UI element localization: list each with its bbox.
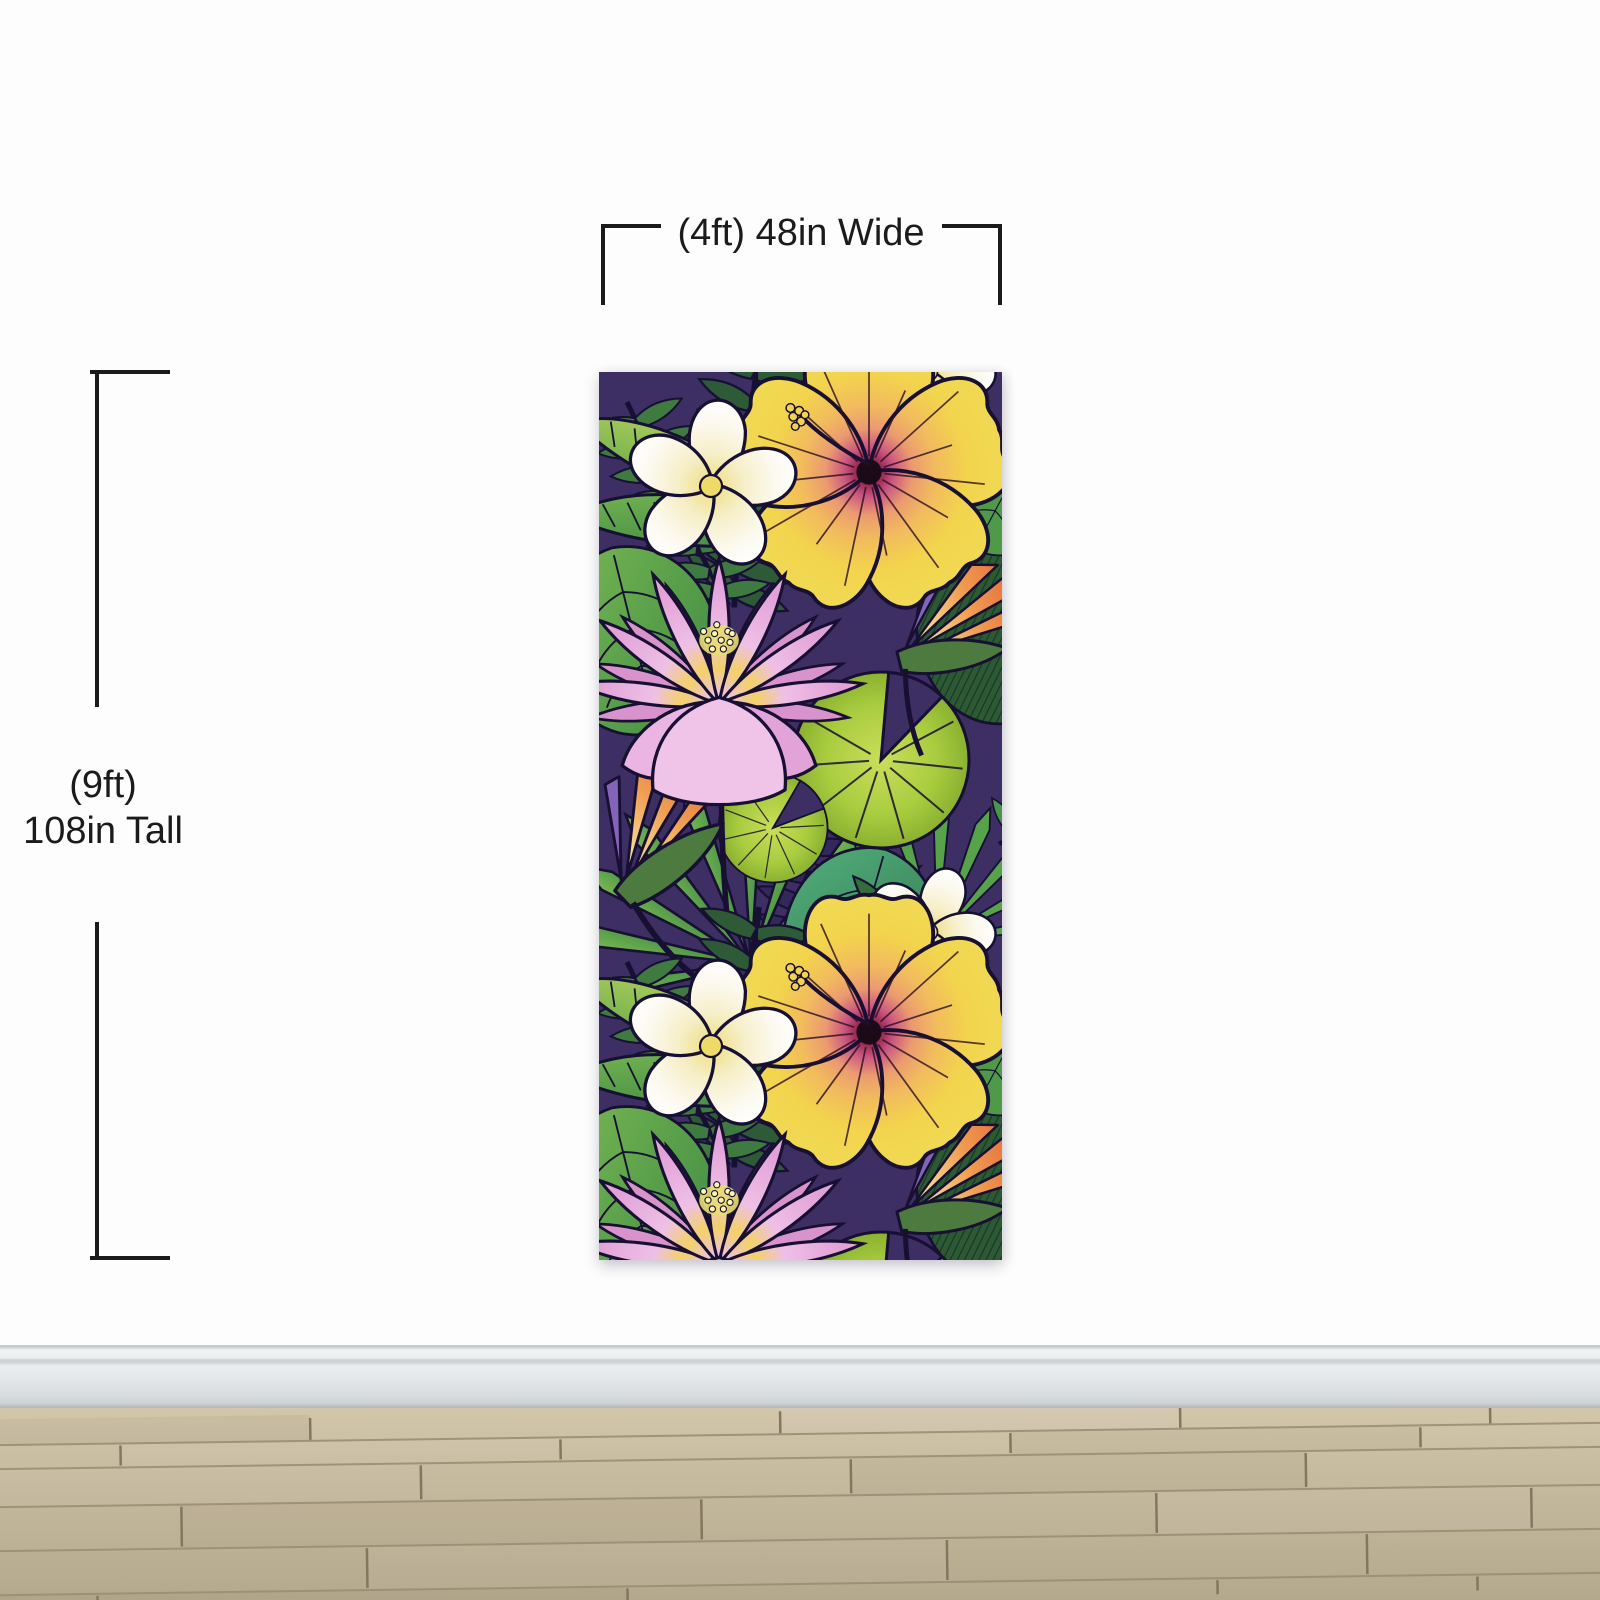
- height-inches-label: 108in Tall: [23, 808, 183, 854]
- height-feet-label: (9ft): [23, 762, 183, 808]
- wallpaper-product-mockup: (4ft) 48in Wide (9ft) 108in Tall: [0, 0, 1600, 1600]
- wallpaper-pattern: [599, 372, 1002, 1260]
- baseboard: [0, 1345, 1600, 1408]
- width-dimension-label: (4ft) 48in Wide: [677, 210, 924, 256]
- wood-floor: [0, 1408, 1600, 1600]
- wallpaper-panel: [599, 372, 1002, 1260]
- height-dimension-label: (9ft) 108in Tall: [23, 762, 183, 854]
